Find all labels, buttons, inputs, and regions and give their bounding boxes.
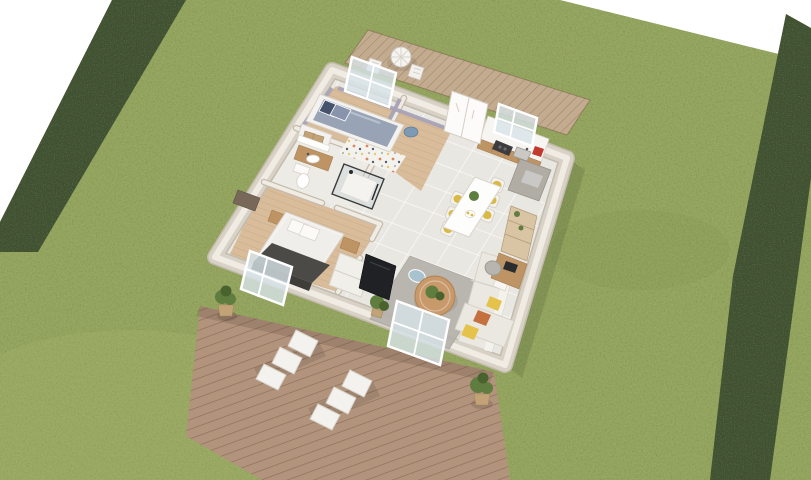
cooktop-burner-2	[503, 147, 506, 150]
plant-2-pot	[474, 394, 490, 405]
table-plant	[469, 191, 479, 201]
lawn-dark-patch	[550, 210, 730, 290]
plant-2-foliage-b	[481, 382, 493, 394]
cooktop-burner-1	[498, 145, 501, 148]
coffee-table-plant-b	[436, 292, 445, 301]
scene-canvas	[0, 0, 811, 480]
blue-basket	[404, 127, 418, 137]
shelf-plant-1	[514, 211, 520, 217]
shelf-plant-2	[519, 226, 524, 231]
plant-2-foliage-c	[478, 373, 489, 384]
shower-head	[349, 170, 353, 174]
fruit-1	[467, 212, 470, 215]
fruit-bowl	[465, 211, 475, 218]
vanity-sink	[307, 155, 320, 163]
indoor-plant-foliage-b	[379, 301, 389, 311]
plant-1-pot	[218, 305, 234, 316]
plant-1-foliage-c	[221, 286, 232, 297]
floor-plan-render	[0, 0, 811, 480]
vanity-faucet	[307, 153, 310, 156]
fruit-2	[471, 214, 474, 217]
bistro-table-slats	[391, 47, 411, 67]
kitchen-faucet	[526, 148, 529, 151]
